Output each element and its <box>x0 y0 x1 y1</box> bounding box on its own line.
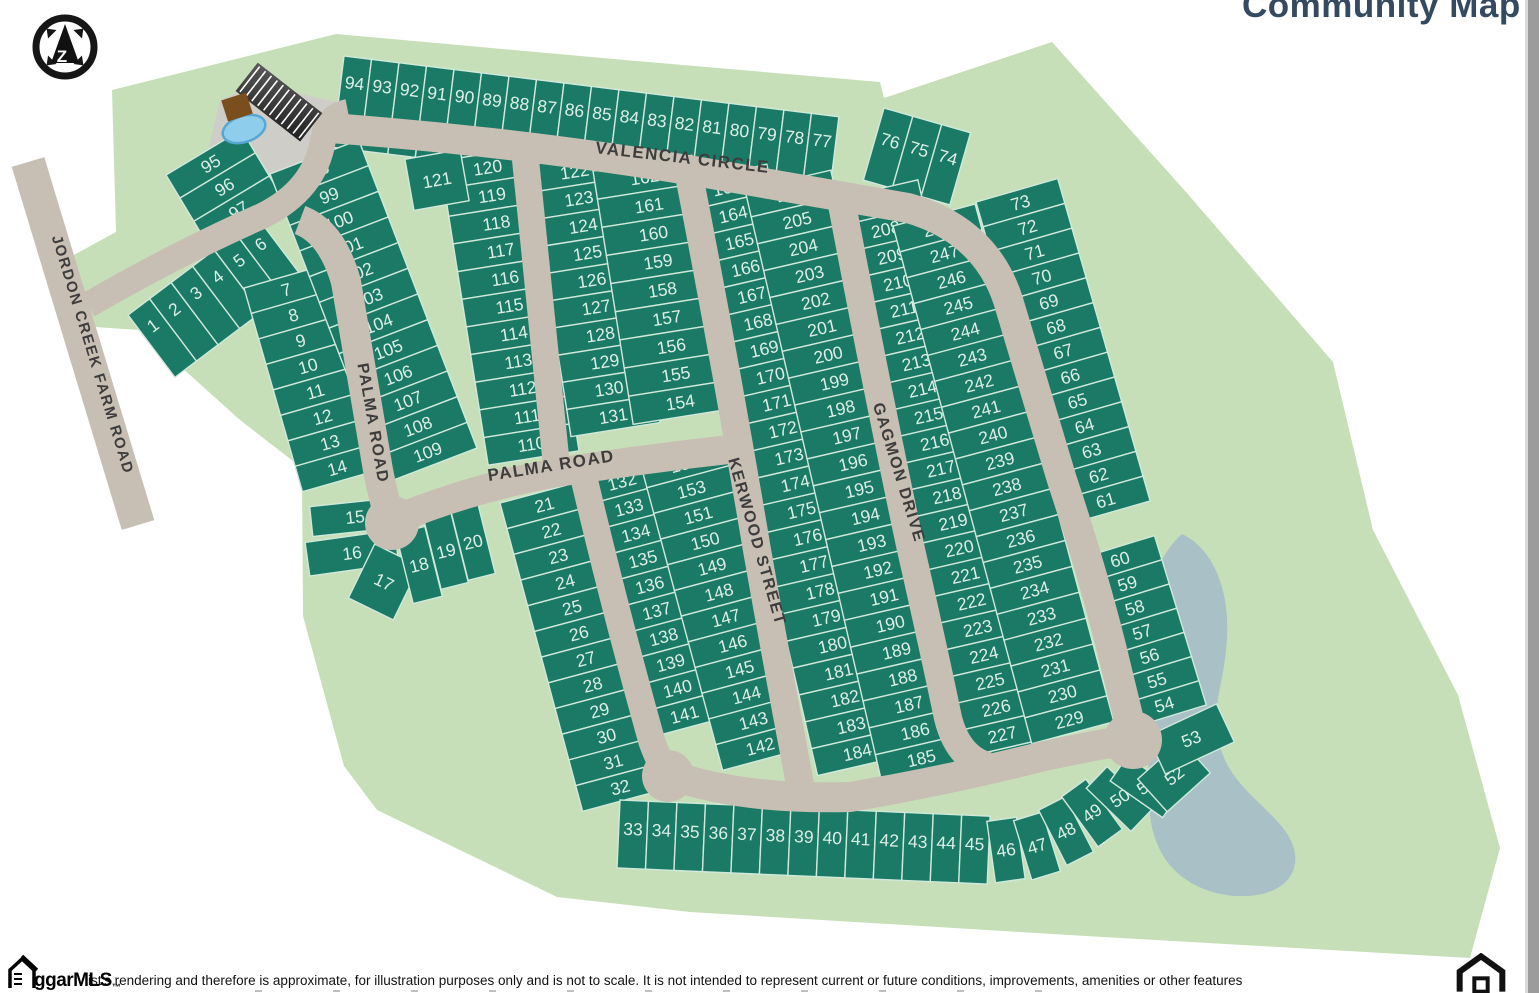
lot-number: 45 <box>965 834 985 855</box>
lot-number: 44 <box>936 832 957 853</box>
lot-number: 43 <box>908 831 928 852</box>
lot-number: 86 <box>564 99 586 121</box>
lot-number: 37 <box>737 824 757 845</box>
lot-number: 81 <box>701 116 723 138</box>
lot-number: 35 <box>680 821 700 842</box>
lot-number: 16 <box>341 542 363 565</box>
lot-number: 94 <box>344 72 366 94</box>
lot-free: 121 <box>405 150 469 211</box>
lot-number: 40 <box>822 827 843 848</box>
lot-number: 34 <box>651 820 672 841</box>
lot-number: 87 <box>536 96 558 118</box>
community-map-page: 9493929190898887868584838281807978777675… <box>0 0 1539 993</box>
page-title: Community Map <box>1242 0 1521 26</box>
lot-number: 41 <box>851 829 871 850</box>
lot-number: 38 <box>765 825 785 846</box>
scrollbar[interactable] <box>1525 0 1539 993</box>
lot-number: 90 <box>454 86 476 108</box>
lot-number: 88 <box>509 92 531 114</box>
lot-number: 79 <box>756 123 778 145</box>
compass-letter: Z <box>57 47 67 66</box>
lot-number: 92 <box>399 79 421 101</box>
cul-de-sac <box>642 750 694 802</box>
disclaimer-text: ist's rendering and therefore is approxi… <box>88 973 1242 988</box>
lot-number: 42 <box>879 830 899 851</box>
lot-number: 77 <box>811 130 833 152</box>
lot-number: 39 <box>794 826 814 847</box>
tick-line <box>255 990 1055 992</box>
lot-number: 85 <box>591 103 613 125</box>
lot-number: 80 <box>729 119 751 141</box>
lot-number: 78 <box>784 126 806 148</box>
lot-number: 93 <box>371 76 393 98</box>
community-map: 9493929190898887868584838281807978777675… <box>0 0 1539 993</box>
cul-de-sac <box>365 496 419 550</box>
lot-number: 89 <box>481 89 503 111</box>
lot-number: 33 <box>623 819 643 840</box>
cul-de-sac <box>1104 711 1162 769</box>
lot-number: 82 <box>674 113 696 135</box>
lot-number: 83 <box>646 109 668 131</box>
lot-number: 36 <box>708 822 728 843</box>
compass-icon: Z <box>26 8 104 86</box>
lot-number: 15 <box>344 506 365 528</box>
home-icon <box>1441 953 1521 993</box>
lot-number: 84 <box>619 106 641 128</box>
lot-number: 46 <box>995 839 1017 862</box>
lot-number: 91 <box>426 82 448 104</box>
